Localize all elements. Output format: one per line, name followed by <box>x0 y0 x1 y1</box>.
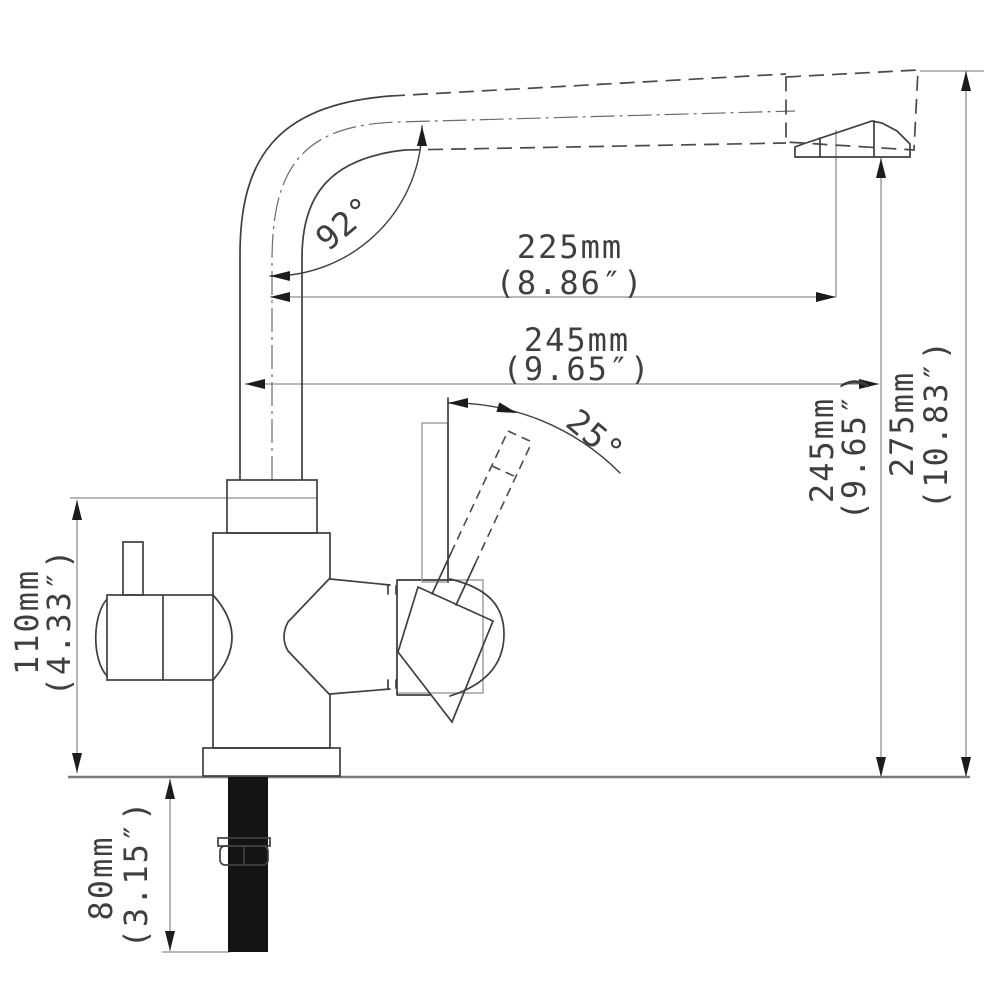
lever-tilted-phantom <box>451 431 532 564</box>
arrowhead <box>417 126 427 146</box>
riser-outer-edge <box>240 96 390 480</box>
arrowhead <box>961 71 971 91</box>
spout-reach-inch-label: (8.86″) <box>496 264 645 302</box>
arrowhead <box>270 292 290 302</box>
handle-dome-edges <box>397 580 452 695</box>
spout-reach-mm-label: 225mm <box>517 228 623 266</box>
base-flange <box>203 748 340 776</box>
spout-total-inch-label: (9.65″) <box>503 350 652 388</box>
aerator-detail-lines <box>820 121 874 157</box>
arrowhead <box>876 158 886 178</box>
riser-collar <box>227 480 317 533</box>
aerator-nozzle <box>795 121 910 157</box>
faucet-outline <box>96 70 918 952</box>
overall-height-inch-label: (10.83″) <box>917 339 955 509</box>
side-handle-body <box>107 595 213 680</box>
lever-tilt-angle-label: 25° <box>559 401 632 471</box>
handle-dome-arc <box>450 579 504 696</box>
body-height-inch-label: (4.33″) <box>40 548 78 697</box>
arrowhead <box>270 271 290 281</box>
handle-cone-edges <box>330 579 390 694</box>
arrowhead <box>496 402 518 417</box>
handle-cap-rotated <box>398 587 493 722</box>
arrowhead <box>165 931 175 951</box>
spout-arm-top-edge <box>390 74 786 96</box>
arrowhead <box>245 379 265 389</box>
handle-neck-rings <box>388 585 396 689</box>
shank-length-inch-label: (3.15″) <box>117 800 155 949</box>
overall-height-mm-label: 275mm <box>883 371 921 477</box>
spout-bend-angle-label: 92° <box>308 188 381 258</box>
dimension-labels: 225mm (8.86″) 245mm (9.65″) 245mm (9.65″… <box>8 188 955 948</box>
drawing-canvas: 225mm (8.86″) 245mm (9.65″) 245mm (9.65″… <box>0 0 1000 1000</box>
arrowhead <box>448 398 468 408</box>
arrowhead <box>72 753 82 773</box>
valve-body <box>213 533 330 748</box>
arrowhead <box>72 500 82 520</box>
side-handle-stem <box>123 542 143 595</box>
arrowhead <box>876 757 886 777</box>
arrowhead <box>961 757 971 777</box>
shank-length-mm-label: 80mm <box>82 835 120 920</box>
side-handle-end-cap <box>96 599 107 676</box>
arrowhead <box>816 292 836 302</box>
spout-end-cap <box>786 70 918 150</box>
spout-arm-bottom-edge <box>405 143 786 150</box>
lever-vertical-phantom <box>422 423 448 582</box>
faucet-technical-drawing: 225mm (8.86″) 245mm (9.65″) 245mm (9.65″… <box>0 0 1000 1000</box>
arrowhead <box>165 779 175 799</box>
outlet-height-inch-label: (9.65″) <box>835 372 873 521</box>
